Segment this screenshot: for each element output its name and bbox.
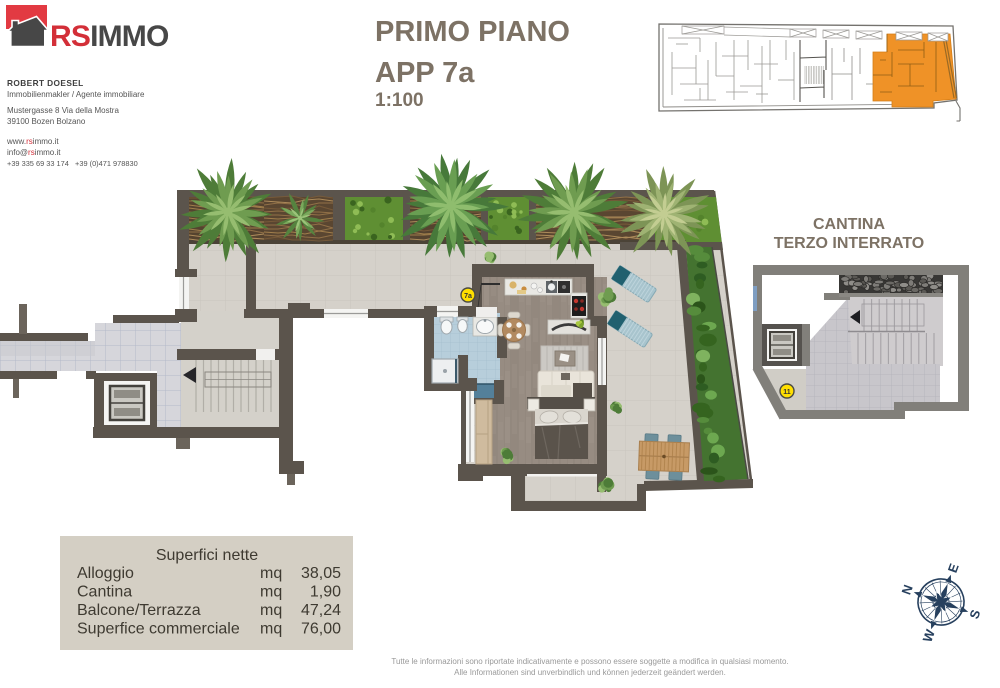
svg-text:mq: mq <box>260 602 282 619</box>
svg-text:Alloggio: Alloggio <box>77 565 134 582</box>
svg-text:7a: 7a <box>464 293 472 300</box>
svg-text:info@rsimmo.it: info@rsimmo.it <box>7 148 61 157</box>
svg-text:PRIMO PIANO: PRIMO PIANO <box>375 16 570 48</box>
svg-text:Superfici nette: Superfici nette <box>156 547 258 564</box>
svg-text:Superfice commerciale: Superfice commerciale <box>77 621 240 638</box>
svg-text:APP 7a: APP 7a <box>375 57 475 89</box>
svg-text:RSIMMO: RSIMMO <box>50 20 169 53</box>
svg-text:Balcone/Terrazza: Balcone/Terrazza <box>77 602 201 619</box>
svg-text:CANTINA: CANTINA <box>813 216 885 233</box>
svg-text:mq: mq <box>260 565 282 582</box>
svg-text:39100 Bozen Bolzano: 39100 Bozen Bolzano <box>7 117 86 126</box>
svg-text:Immobilienmakler / Agente immo: Immobilienmakler / Agente immobiliare <box>7 90 145 99</box>
svg-text:47,24: 47,24 <box>301 602 341 619</box>
svg-text:ROBERT DOESEL: ROBERT DOESEL <box>7 78 84 88</box>
svg-text:mq: mq <box>260 584 282 601</box>
svg-text:11: 11 <box>783 389 791 396</box>
svg-text:Cantina: Cantina <box>77 584 132 601</box>
svg-text:+39 335 69 33 174 +39 (0)471: +39 335 69 33 174 +39 (0)471 978830 <box>7 159 138 168</box>
svg-text:mq: mq <box>260 621 282 638</box>
svg-text:38,05: 38,05 <box>301 565 341 582</box>
svg-text:TERZO INTERRATO: TERZO INTERRATO <box>774 235 925 252</box>
svg-text:1:100: 1:100 <box>375 90 424 111</box>
svg-text:1,90: 1,90 <box>310 584 341 601</box>
svg-text:Tutte le informazioni sono rip: Tutte le informazioni sono riportate ind… <box>391 657 788 666</box>
svg-text:www.rsimmo.it: www.rsimmo.it <box>6 137 59 146</box>
svg-text:76,00: 76,00 <box>301 621 341 638</box>
svg-text:Alle Informationen sind unverb: Alle Informationen sind unverbindlich un… <box>454 668 726 677</box>
svg-text:Mustergasse 8 Via della Mostra: Mustergasse 8 Via della Mostra <box>7 106 119 115</box>
